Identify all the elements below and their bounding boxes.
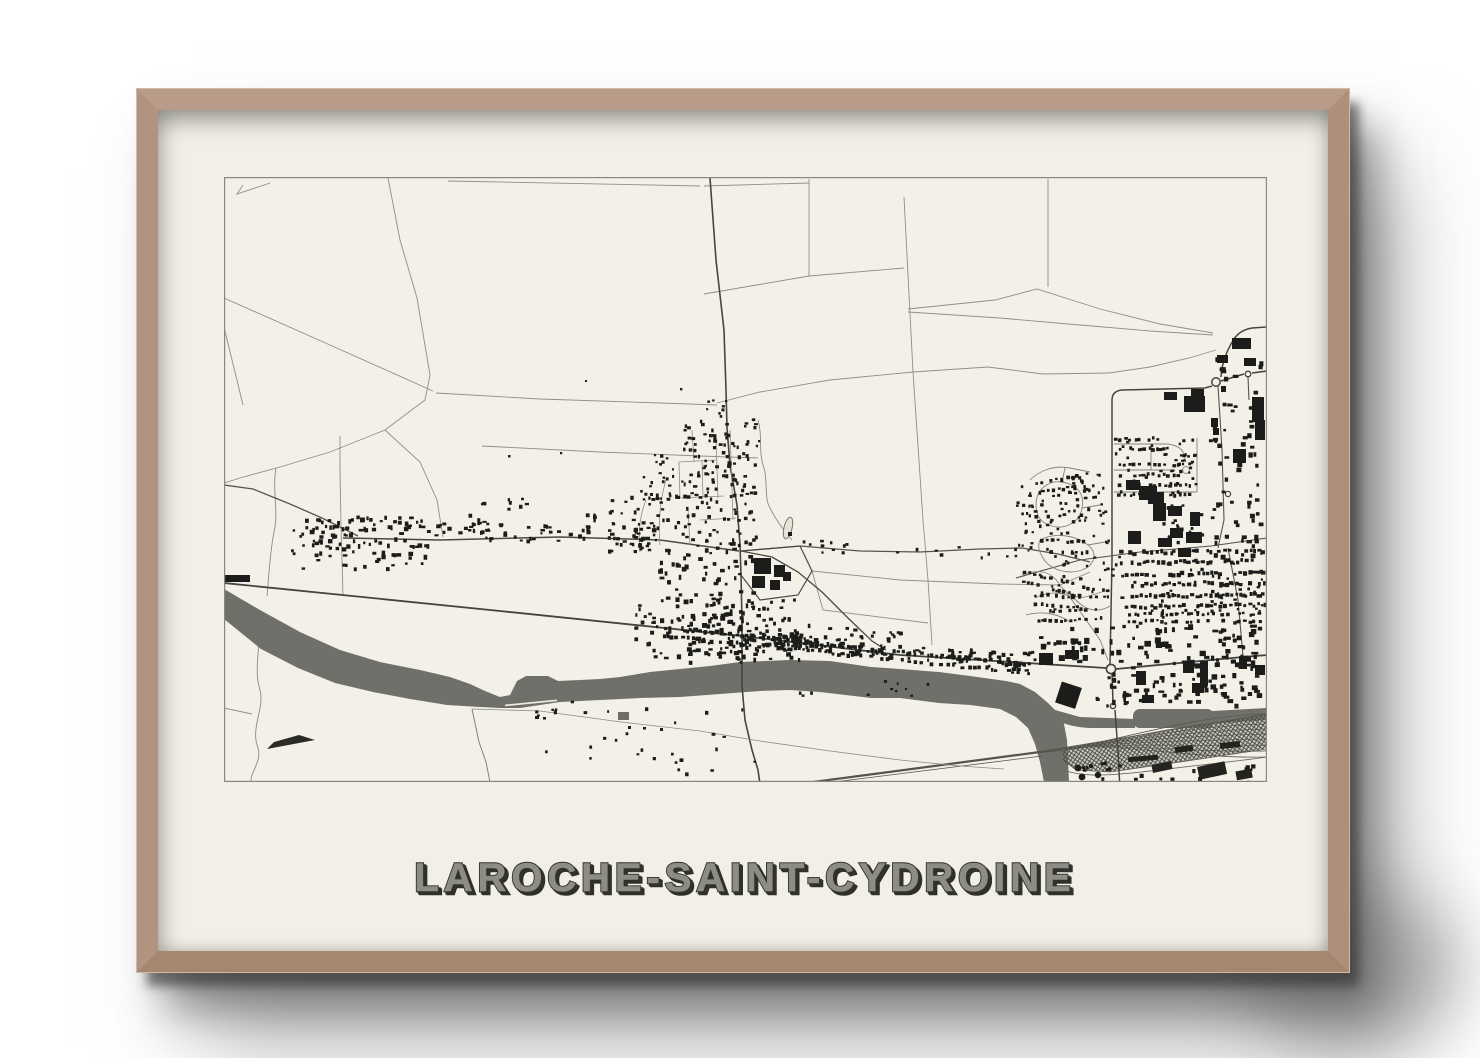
svg-text:LAROCHE-SAINT-CYDROINE: LAROCHE-SAINT-CYDROINE	[414, 856, 1075, 900]
